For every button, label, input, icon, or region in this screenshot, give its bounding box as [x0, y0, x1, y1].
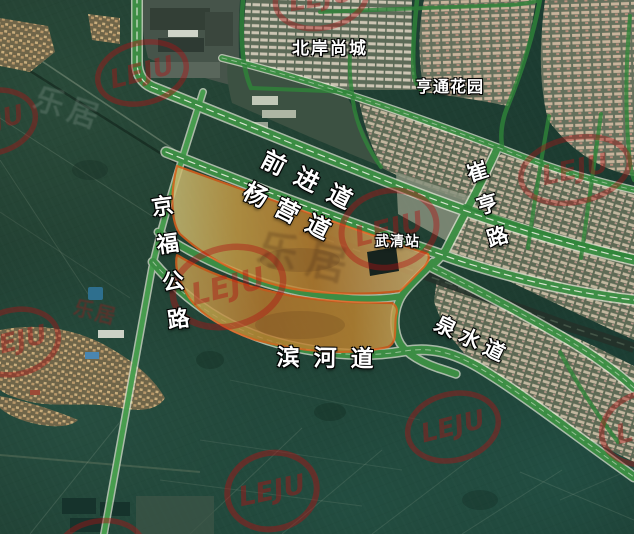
- station-label-wuqing: 武清站: [375, 231, 420, 251]
- road-label-binhe-dao: 滨河道: [276, 338, 388, 374]
- satellite-map[interactable]: LEJU LEJU LEJU LEJU LEJU LEJU: [0, 0, 634, 534]
- station-building-marker: [367, 247, 399, 276]
- place-label-hengtong-garden: 亨通花园: [416, 73, 484, 97]
- leju-watermark-text: LEJU: [418, 405, 488, 450]
- map-canvas: LEJU LEJU LEJU LEJU LEJU LEJU: [0, 0, 634, 534]
- leju-watermark-text: LEJU: [236, 469, 309, 513]
- place-label-beian-shangcheng: 北岸尚城: [292, 34, 368, 59]
